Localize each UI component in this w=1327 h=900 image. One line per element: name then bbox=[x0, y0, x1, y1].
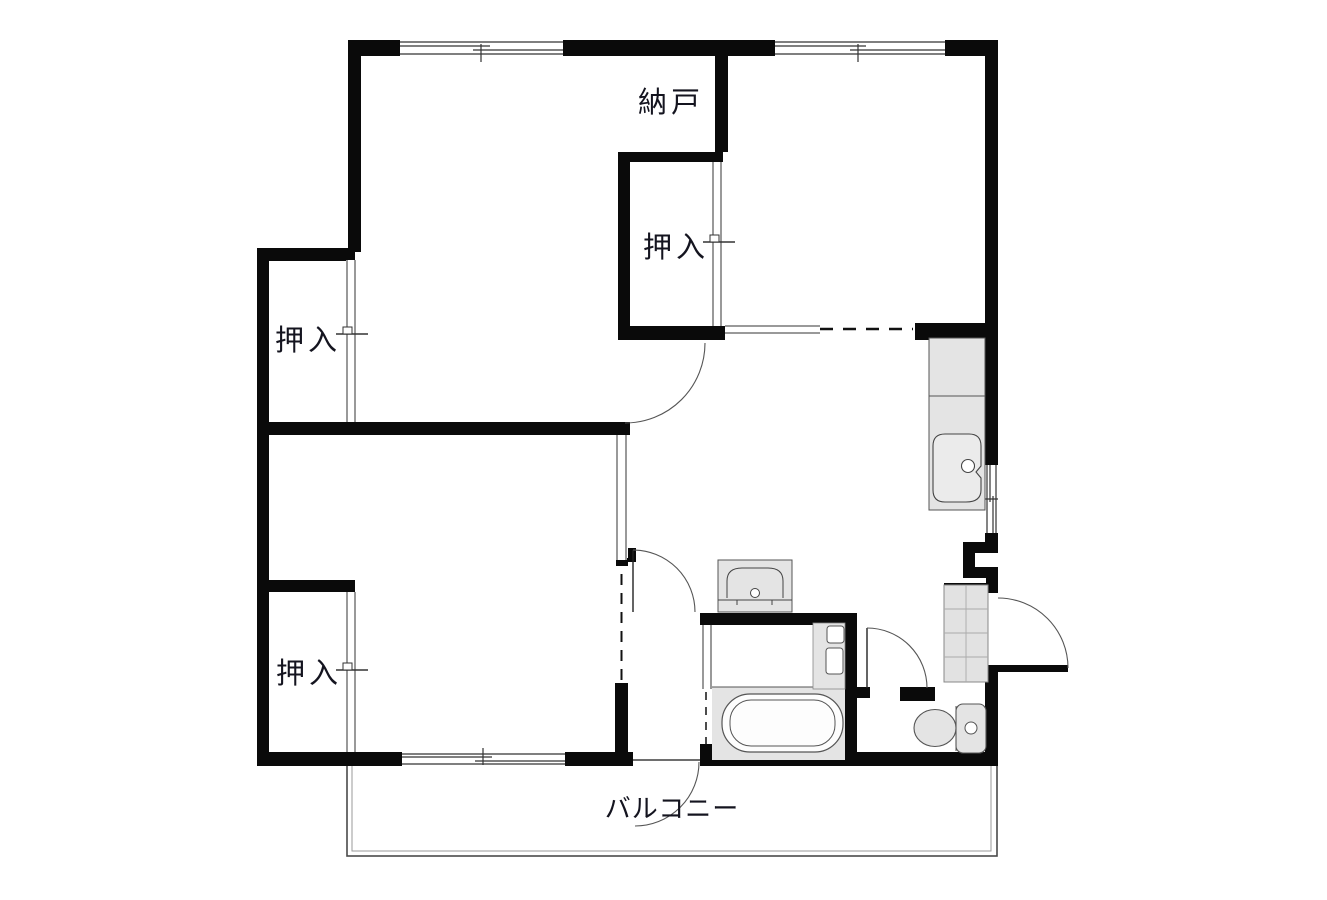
sliding-door-bedroom-upper-right bbox=[725, 325, 820, 334]
door-toilet bbox=[867, 628, 927, 688]
window-balcony bbox=[402, 748, 565, 765]
room-label-storage: 納戸 bbox=[638, 79, 704, 121]
wall-room-divider bbox=[257, 422, 630, 435]
entrance-door-leaf bbox=[988, 665, 1068, 672]
wall-closet-upper-bottom bbox=[618, 326, 725, 340]
wash-basin bbox=[718, 560, 792, 612]
wall-west-main bbox=[257, 248, 269, 765]
wall-top-right bbox=[945, 40, 998, 56]
room-label-closet-lower: 押入 bbox=[276, 650, 342, 692]
windows bbox=[400, 41, 998, 765]
door-arc-entrance bbox=[998, 598, 1068, 668]
bathroom-fixtures bbox=[712, 623, 845, 760]
wall-entry-jog-1 bbox=[963, 542, 998, 553]
basin-faucet-icon bbox=[751, 589, 760, 598]
wall-closet-upper-top bbox=[618, 152, 723, 162]
kitchen-counter bbox=[929, 338, 985, 510]
wall-storage-east bbox=[715, 52, 728, 152]
wall-closet-lower-top bbox=[257, 580, 355, 592]
toilet bbox=[914, 704, 986, 753]
wall-east-lower bbox=[985, 672, 998, 766]
floorplan-page: 納戸 押入 押入 押入 バルコニー bbox=[0, 0, 1327, 900]
sliding-door-bedroom-lower bbox=[616, 435, 627, 560]
wall-bath-west-stub bbox=[700, 744, 712, 756]
dashed-openings bbox=[622, 329, 914, 748]
room-label-balcony: バルコニー bbox=[605, 789, 739, 826]
room-label-closet-left: 押入 bbox=[275, 317, 341, 359]
door-arc-bedroom-upper-left bbox=[625, 343, 705, 423]
wall-closet-left-top bbox=[257, 248, 355, 261]
window-top-left bbox=[400, 41, 563, 62]
wall-entry-jog-3 bbox=[963, 567, 998, 578]
wall-kitchen-north bbox=[915, 323, 987, 340]
wall-east-upper bbox=[985, 56, 998, 465]
wall-closet-upper-west bbox=[618, 152, 630, 340]
wall-south-a bbox=[257, 752, 402, 766]
sliding-doors bbox=[336, 162, 820, 752]
folding-door-bathroom bbox=[702, 625, 712, 689]
floorplan-drawing bbox=[0, 0, 1327, 900]
shoe-cabinet bbox=[944, 585, 988, 682]
kitchen-faucet-icon bbox=[962, 460, 975, 473]
door-washroom bbox=[633, 550, 695, 612]
wall-top-mid bbox=[563, 40, 775, 56]
wall-hall-east-lower bbox=[615, 683, 628, 754]
wall-toilet-stub-east bbox=[900, 687, 935, 701]
toilet-bowl bbox=[914, 710, 956, 747]
room-label-closet-upper: 押入 bbox=[643, 224, 709, 266]
wall-toilet-stub-west bbox=[853, 687, 870, 698]
wall-west-upper bbox=[348, 40, 361, 252]
window-top-right bbox=[775, 41, 945, 62]
wall-south-b bbox=[565, 752, 633, 766]
